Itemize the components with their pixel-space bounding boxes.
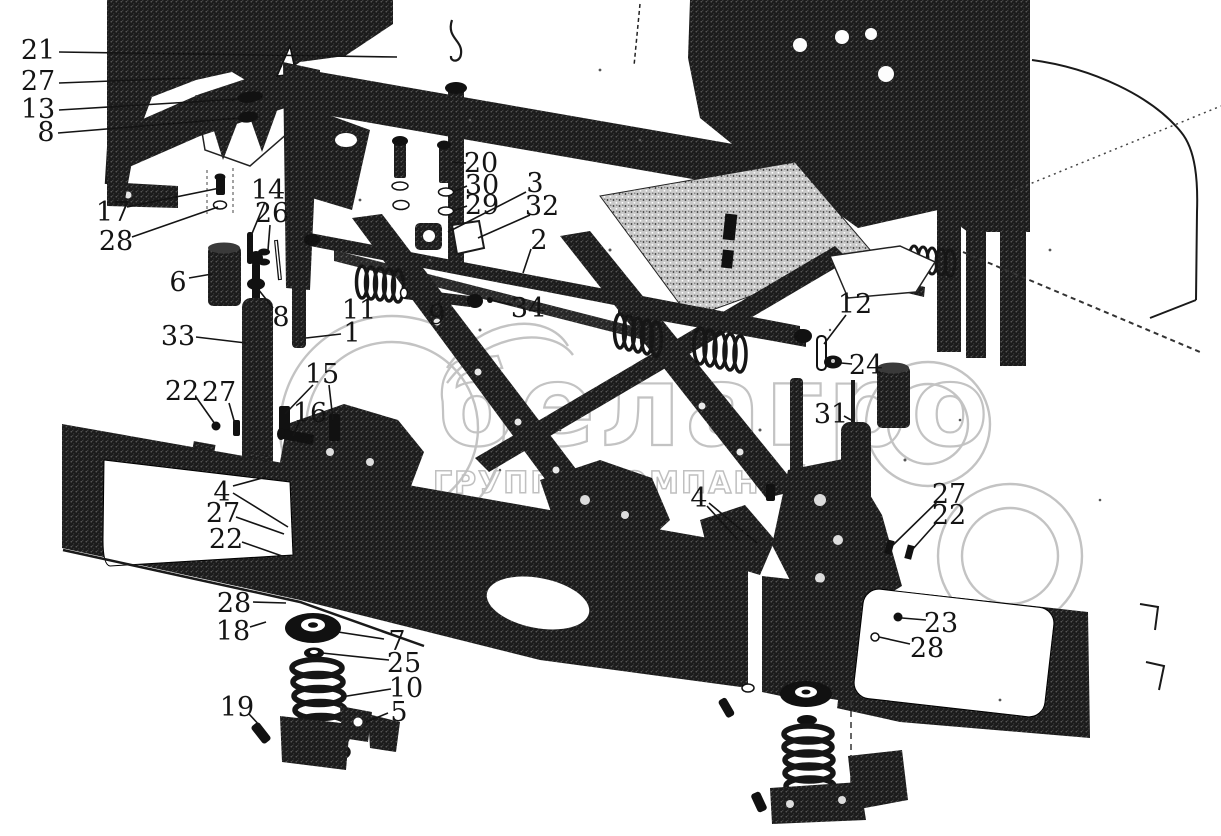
svg-text:6: 6: [169, 267, 186, 298]
spring-base-left: [280, 716, 350, 770]
svg-text:5: 5: [390, 697, 407, 728]
buffer-cylinder-6: [208, 246, 241, 306]
svg-text:28: 28: [99, 226, 133, 257]
callout-18-29: 18: [216, 616, 266, 647]
svg-text:2: 2: [530, 225, 547, 256]
svg-text:15: 15: [305, 359, 339, 390]
svg-text:31: 31: [814, 399, 848, 430]
callout-9-13: 9: [428, 298, 445, 331]
fastener-group-top: [392, 136, 454, 215]
svg-text:9: 9: [428, 300, 445, 331]
svg-text:28: 28: [910, 633, 944, 664]
svg-text:11: 11: [342, 295, 376, 326]
svg-text:33: 33: [161, 321, 195, 352]
callout-11-12: 11: [342, 293, 376, 326]
svg-text:27: 27: [21, 66, 55, 97]
svg-text:29: 29: [465, 190, 499, 221]
mount-channel: [937, 0, 961, 352]
callout-10-32: 10: [341, 673, 423, 704]
svg-text:22: 22: [932, 500, 966, 531]
callout-19-34: 19: [220, 692, 262, 728]
bolt-23: [894, 613, 903, 622]
panel-edge-hook: [451, 20, 461, 61]
svg-text:34: 34: [511, 293, 545, 324]
pin-12: [817, 336, 826, 370]
callout-26-9: 26: [255, 198, 289, 250]
mount-channel: [966, 0, 986, 358]
washer-30: [439, 188, 454, 196]
svg-text:22: 22: [209, 524, 243, 555]
tie-rod-1: [292, 282, 306, 348]
svg-text:8: 8: [272, 302, 289, 333]
svg-text:17: 17: [96, 197, 130, 228]
bolt-15b: [329, 414, 340, 441]
washer-28r: [871, 633, 879, 641]
parts-diagram: белагро ГРУППА КОМПАНИЙ: [0, 0, 1221, 836]
svg-text:19: 19: [220, 692, 254, 723]
callout-6-6: 6: [169, 267, 212, 298]
bolt-22: [212, 422, 221, 431]
callout-12-35: 12: [824, 289, 872, 344]
callout-27-15: 27: [202, 377, 236, 424]
svg-text:8: 8: [37, 117, 54, 148]
callout-31-37: 31: [814, 399, 851, 430]
svg-text:12: 12: [838, 289, 872, 320]
diagram-canvas: белагро ГРУППА КОМПАНИЙ: [0, 0, 1221, 836]
svg-text:26: 26: [255, 198, 289, 229]
svg-text:22: 22: [165, 376, 199, 407]
svg-text:24: 24: [849, 350, 883, 381]
svg-text:28: 28: [217, 588, 251, 619]
callout-33-7: 33: [161, 321, 246, 352]
coil-spring-right: [784, 726, 834, 794]
callout-2-23: 2: [523, 225, 548, 273]
bolt-19: [250, 721, 271, 744]
bumper-right-section: [762, 576, 1164, 738]
svg-text:4: 4: [690, 483, 707, 514]
svg-text:18: 18: [216, 616, 250, 647]
svg-text:16: 16: [293, 398, 327, 429]
washer-29: [439, 207, 454, 215]
svg-text:32: 32: [525, 191, 559, 222]
svg-text:27: 27: [202, 377, 236, 408]
mount-channel: [1000, 0, 1026, 366]
svg-text:21: 21: [21, 35, 55, 66]
